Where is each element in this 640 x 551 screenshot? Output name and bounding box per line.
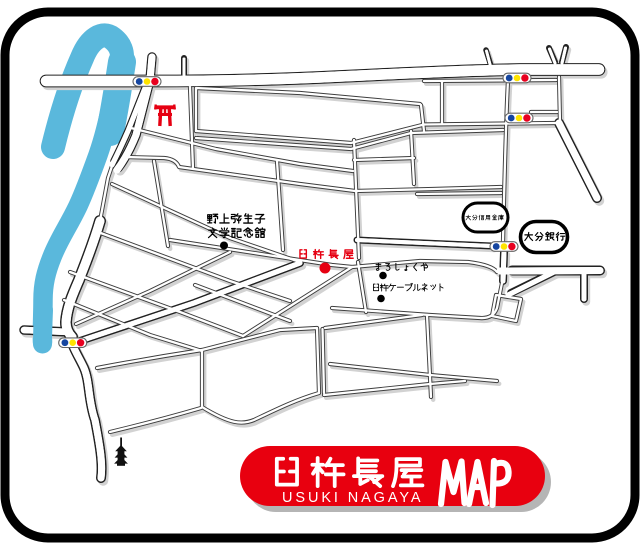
svg-text:USUKI NAGAYA: USUKI NAGAYA [282, 490, 423, 506]
